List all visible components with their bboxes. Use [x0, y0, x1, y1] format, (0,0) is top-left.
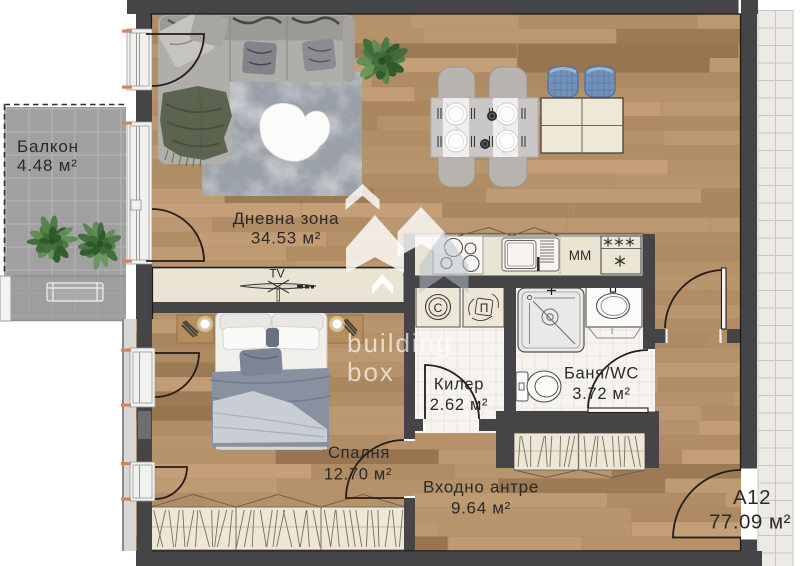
svg-text:Килер: Килер — [434, 376, 484, 394]
svg-text:Входно антре: Входно антре — [423, 478, 539, 497]
svg-text:Дневна зона: Дневна зона — [233, 209, 340, 228]
svg-text:box: box — [347, 357, 395, 387]
svg-text:Баня/WC: Баня/WC — [564, 365, 639, 383]
svg-text:4.48 м²: 4.48 м² — [17, 156, 78, 175]
svg-text:C: C — [434, 301, 443, 315]
svg-text:34.53 м²: 34.53 м² — [251, 229, 321, 248]
svg-text:Спалня: Спалня — [328, 444, 390, 462]
svg-text:TV: TV — [269, 267, 284, 281]
svg-text:77.09 м²: 77.09 м² — [709, 511, 791, 534]
svg-text:building: building — [347, 328, 453, 358]
svg-text:MM: MM — [569, 248, 592, 263]
svg-text:Балкон: Балкон — [17, 137, 79, 156]
svg-text:А12: А12 — [733, 486, 771, 509]
svg-text:П: П — [480, 301, 489, 315]
svg-text:2.62 м²: 2.62 м² — [430, 396, 488, 414]
svg-text:3.72 м²: 3.72 м² — [572, 385, 630, 403]
svg-text:9.64 м²: 9.64 м² — [451, 499, 511, 518]
svg-text:12.70 м²: 12.70 м² — [324, 466, 392, 484]
